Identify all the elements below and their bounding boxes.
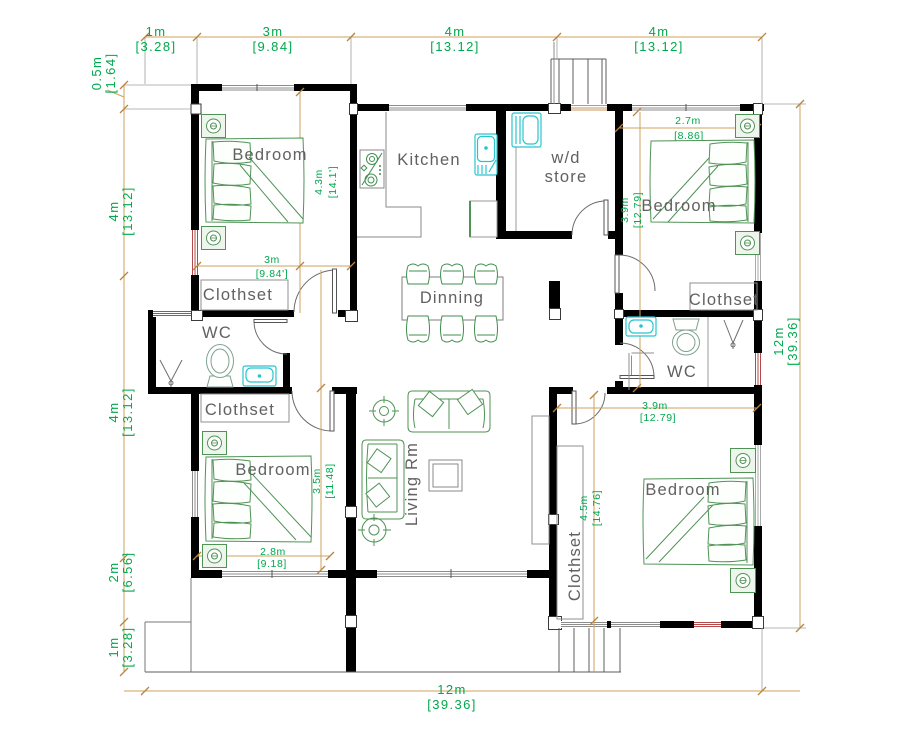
svg-text:Kitchen: Kitchen xyxy=(397,151,460,169)
svg-text:3.5m: 3.5m xyxy=(311,468,323,494)
svg-text:3m: 3m xyxy=(263,24,284,39)
svg-text:2m: 2m xyxy=(106,562,121,583)
svg-text:WC: WC xyxy=(667,363,697,381)
svg-text:Bedroom: Bedroom xyxy=(232,146,307,164)
svg-text:[14.1']: [14.1'] xyxy=(327,166,339,198)
svg-text:12m: 12m xyxy=(771,326,786,356)
svg-text:[3.28]: [3.28] xyxy=(136,39,177,54)
svg-text:Bedroom: Bedroom xyxy=(641,197,716,215)
svg-text:[39.36]: [39.36] xyxy=(427,697,477,712)
svg-text:Clothset: Clothset xyxy=(689,291,759,309)
svg-text:[9.18]: [9.18] xyxy=(257,558,287,570)
svg-text:[13.12]: [13.12] xyxy=(634,39,684,54)
svg-text:[9.84]: [9.84] xyxy=(253,39,294,54)
svg-text:1m: 1m xyxy=(106,637,121,658)
svg-text:Bedroom: Bedroom xyxy=(235,461,310,479)
svg-text:[3.28]: [3.28] xyxy=(120,627,135,668)
svg-text:3.9m: 3.9m xyxy=(619,197,631,223)
svg-text:4.5m: 4.5m xyxy=(578,495,590,521)
svg-text:[13.12]: [13.12] xyxy=(120,387,135,437)
svg-text:Clothset: Clothset xyxy=(566,531,584,601)
svg-text:Clothset: Clothset xyxy=(203,286,273,304)
svg-text:4m: 4m xyxy=(106,402,121,423)
svg-text:3m: 3m xyxy=(264,254,280,266)
svg-text:Living Rm: Living Rm xyxy=(403,442,421,526)
svg-text:4.3m: 4.3m xyxy=(313,169,325,195)
svg-text:[13.12]: [13.12] xyxy=(430,39,480,54)
svg-text:4m: 4m xyxy=(649,24,670,39)
svg-text:2.8m: 2.8m xyxy=(260,546,286,558)
svg-text:3.9m: 3.9m xyxy=(642,400,668,412)
svg-text:12m: 12m xyxy=(437,682,467,697)
svg-text:4m: 4m xyxy=(445,24,466,39)
svg-text:4m: 4m xyxy=(106,201,121,222)
svg-text:[11.48]: [11.48] xyxy=(324,463,336,499)
svg-text:Bedroom: Bedroom xyxy=(645,481,720,499)
svg-text:[1.64]: [1.64] xyxy=(103,53,118,94)
svg-text:[6.56]: [6.56] xyxy=(120,552,135,593)
svg-text:0.5m: 0.5m xyxy=(89,56,104,91)
svg-text:store: store xyxy=(545,168,588,186)
svg-text:w/d: w/d xyxy=(550,149,580,167)
svg-text:[39.36]: [39.36] xyxy=(785,316,800,366)
svg-text:[9.84']: [9.84'] xyxy=(256,268,288,280)
svg-text:[14.76]: [14.76] xyxy=(591,490,603,526)
svg-text:1m: 1m xyxy=(146,24,167,39)
svg-text:[12.79]: [12.79] xyxy=(640,412,676,424)
svg-text:Dinning: Dinning xyxy=(420,289,484,307)
svg-text:2.7m: 2.7m xyxy=(675,115,701,127)
svg-text:Clothset: Clothset xyxy=(205,401,275,419)
svg-text:WC: WC xyxy=(202,324,232,342)
svg-text:[13.12]: [13.12] xyxy=(120,186,135,236)
